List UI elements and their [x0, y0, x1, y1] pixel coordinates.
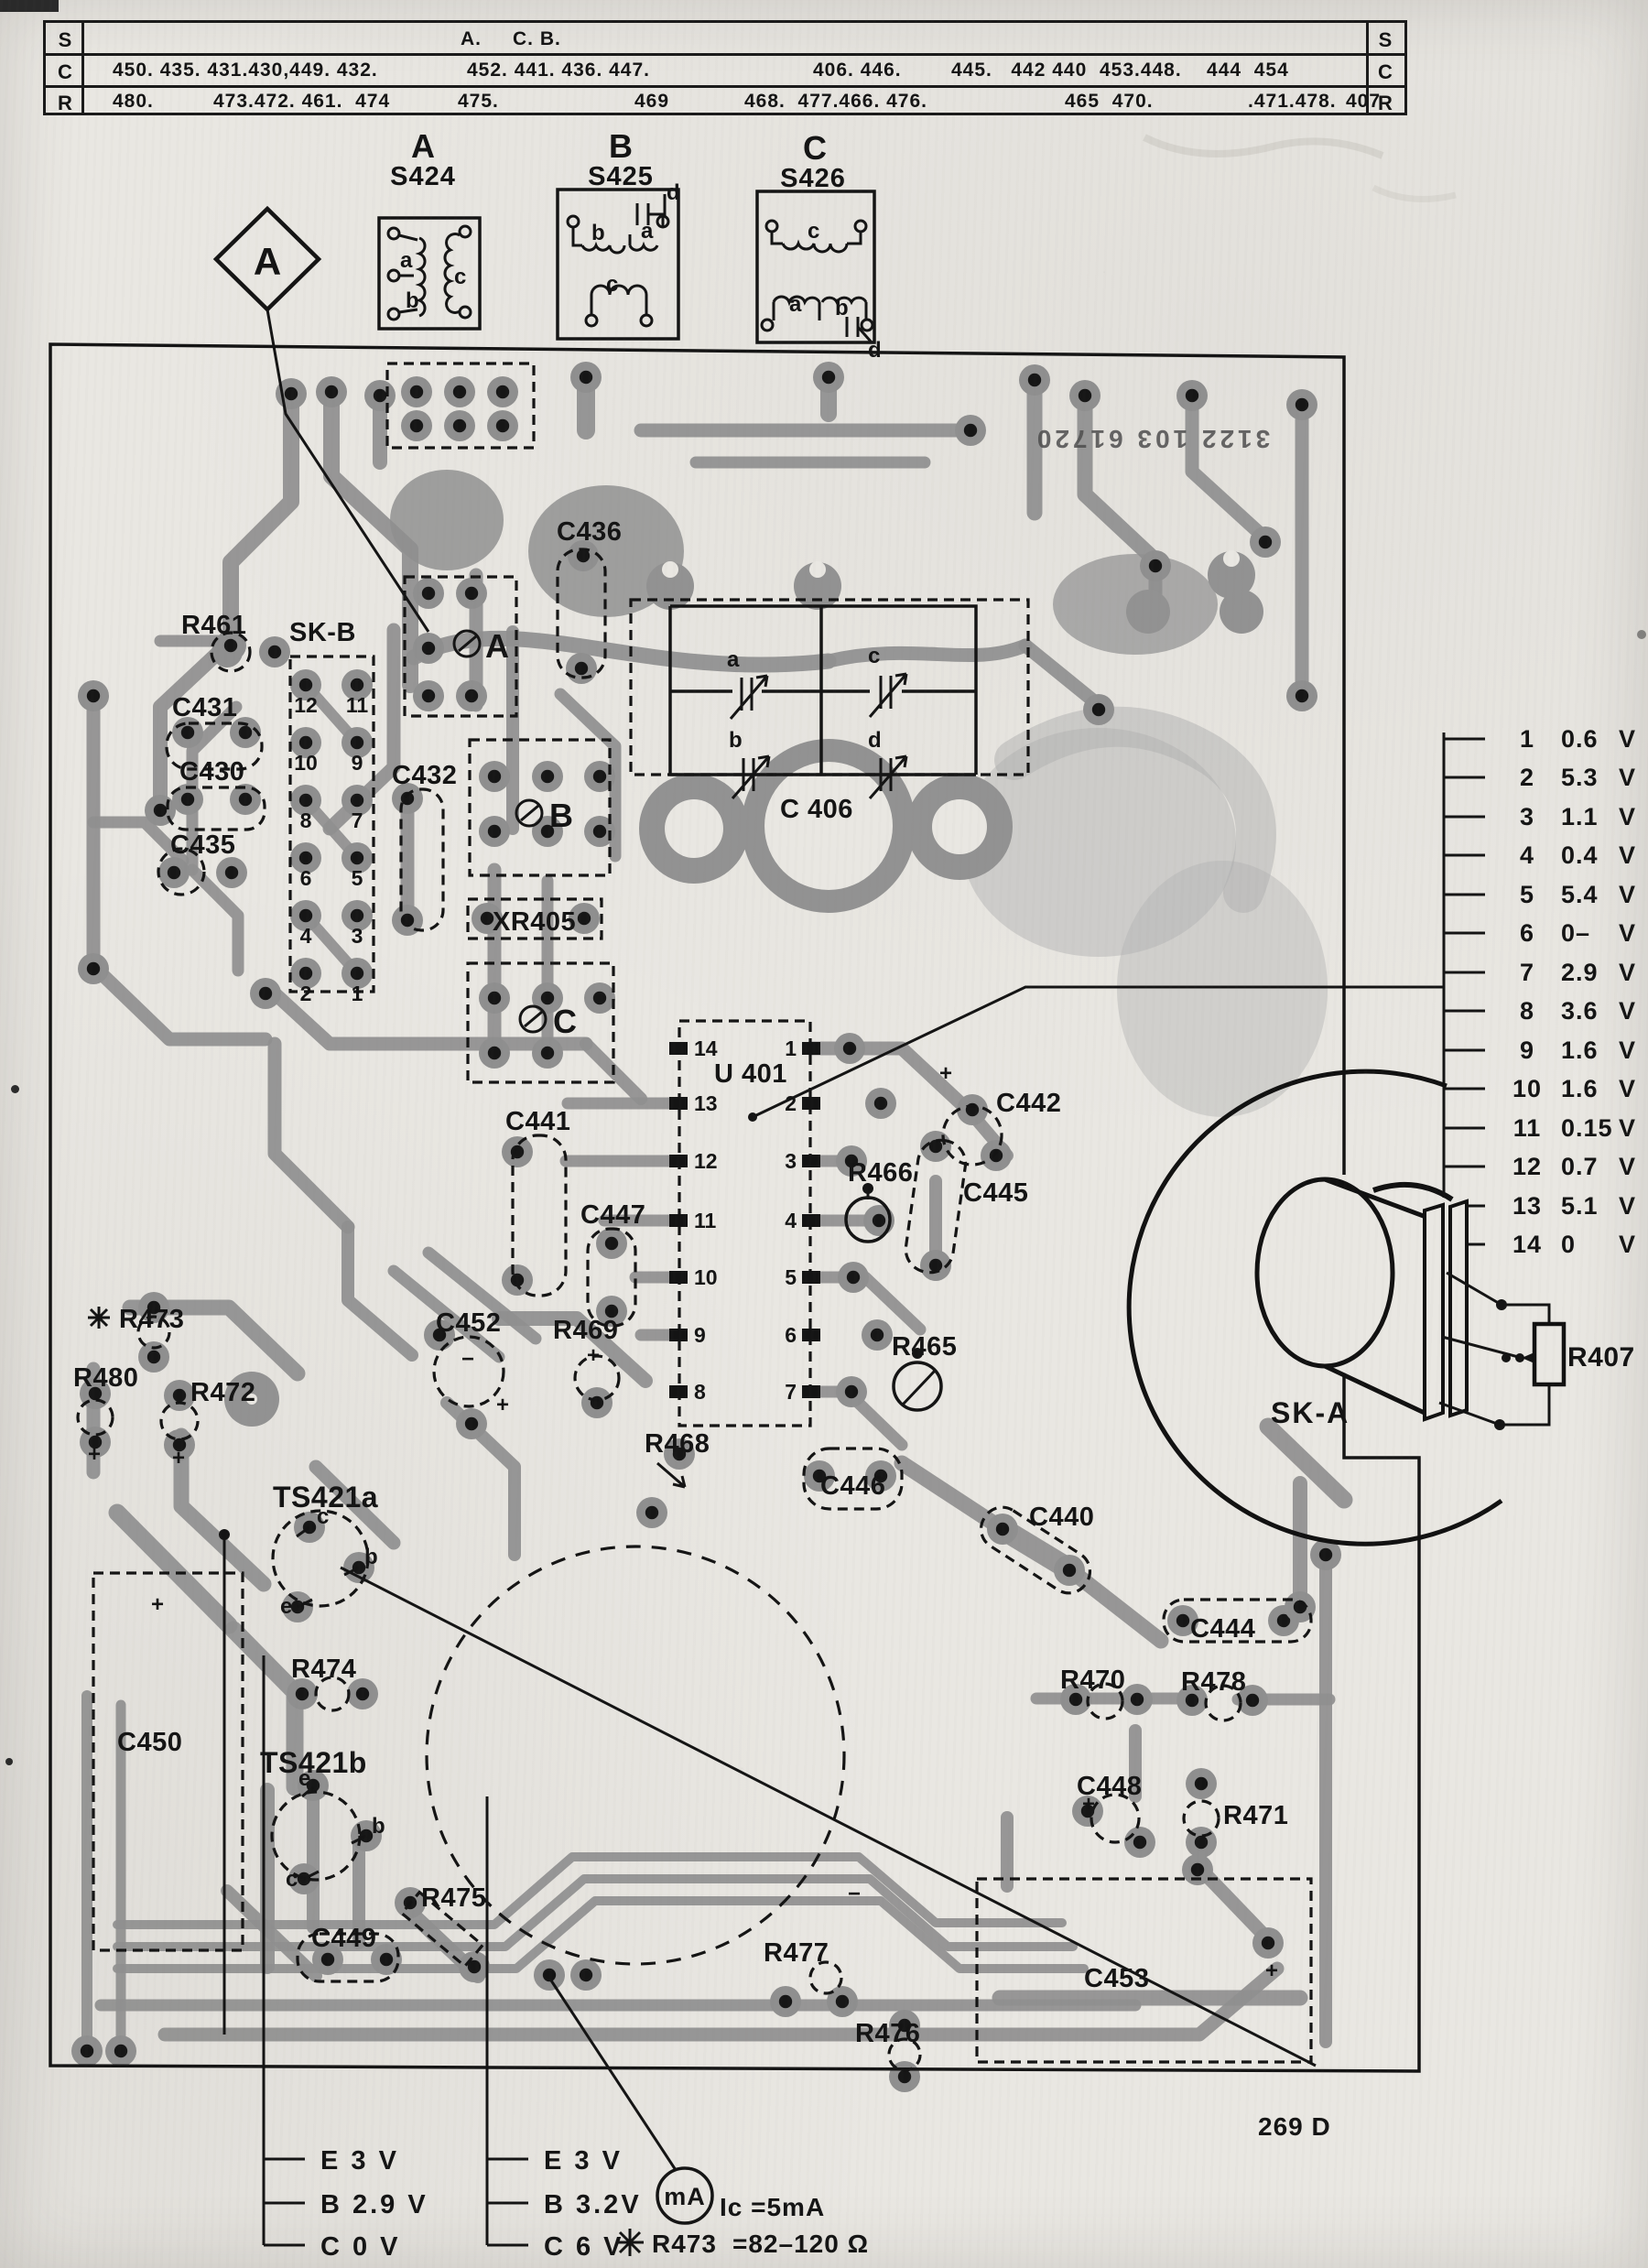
svg-text:0.15: 0.15: [1561, 1114, 1613, 1142]
solder-pad-hole: [422, 689, 435, 702]
svg-text:5.3: 5.3: [1561, 764, 1599, 791]
terminal-letter: d: [868, 338, 882, 363]
svg-text:0.7: 0.7: [1561, 1153, 1599, 1180]
svg-text:V: V: [1619, 841, 1636, 869]
solder-pad-hole: [374, 389, 386, 402]
svg-text:7: 7: [1520, 959, 1534, 986]
solder-pad-hole: [453, 385, 466, 398]
solder-pad-hole: [285, 387, 298, 400]
solder-pad-hole: [605, 1237, 618, 1250]
component-label-r476: R476: [855, 2019, 920, 2048]
svg-text:8: 8: [694, 1380, 706, 1404]
terminal-letter: d: [667, 180, 680, 205]
minus-sign: −: [461, 1347, 474, 1372]
screw-label-c: C: [553, 1003, 577, 1040]
pcb-trace: [231, 396, 291, 641]
solder-pad-hole: [168, 866, 180, 879]
component-label-r469: R469: [553, 1316, 618, 1345]
solder-pad-hole: [1028, 374, 1041, 386]
switch-detail-s425: B S425 d b a c: [558, 127, 680, 339]
component-label-r465: R465: [892, 1332, 957, 1362]
solder-pad-hole: [465, 1417, 478, 1430]
solder-pad-hole: [453, 419, 466, 432]
solder-pad-hole: [380, 1953, 393, 1966]
component-label-c436: C436: [557, 517, 622, 547]
plus-sign: +: [496, 1393, 509, 1417]
solder-pad-hole: [465, 587, 478, 600]
solder-pad-hole: [299, 852, 312, 864]
component-label-r473: R473: [119, 1305, 184, 1334]
plus-sign: +: [587, 1343, 600, 1368]
solder-pad-hole: [779, 1995, 792, 2008]
asterisk-icon: [88, 1307, 110, 1329]
component-label-u401: U 401: [714, 1059, 787, 1089]
component-label-c453: C453: [1084, 1964, 1149, 1993]
svg-text:V: V: [1619, 1075, 1636, 1102]
svg-text:1: 1: [785, 1036, 797, 1060]
coil-letter: c: [606, 272, 618, 297]
minus-sign: −: [848, 1882, 861, 1906]
svg-text:11: 11: [694, 1209, 717, 1232]
coil-letter: b: [591, 221, 605, 245]
component-label-skb: SK-B: [289, 618, 356, 647]
component-label-ts421b: TS421b: [260, 1746, 367, 1779]
component-label-c450: C450: [117, 1728, 182, 1757]
solder-pad-hole: [874, 1097, 887, 1110]
solder-pad-hole: [410, 385, 423, 398]
ts421a-pin-e: e: [280, 1594, 292, 1619]
switch-detail-s426: C S426 c d a b: [757, 129, 882, 363]
solder-pad-hole: [422, 642, 435, 655]
solder-pad-hole: [351, 794, 363, 807]
u401-pins: 14 13 12 11 10 9 8 1 2 3 4 5 6 7: [669, 1036, 820, 1404]
solder-pad-hole: [580, 1969, 592, 1981]
svg-text:2: 2: [1520, 764, 1534, 791]
plus-sign: +: [172, 1446, 185, 1470]
component-label-c452: C452: [436, 1308, 501, 1338]
solder-pad-hole: [593, 825, 606, 838]
ts421a-pin-b: b: [364, 1545, 378, 1569]
pcb-trace: [93, 966, 266, 1039]
switch-ref: S425: [588, 162, 654, 191]
solder-pad-hole: [239, 726, 252, 739]
svg-text:V: V: [1619, 881, 1636, 908]
coil-letter: b: [835, 296, 849, 320]
svg-text:10: 10: [1512, 1075, 1542, 1102]
svg-text:14: 14: [694, 1036, 718, 1060]
component-label-c447: C447: [580, 1200, 645, 1230]
component-label-r468: R468: [645, 1429, 710, 1459]
solder-pad-hole: [239, 793, 252, 806]
solder-pad-hole: [593, 770, 606, 783]
component-label-c445: C445: [963, 1178, 1028, 1208]
solder-pad-hole: [299, 909, 312, 922]
solder-pad-hole: [1319, 1548, 1332, 1561]
pcb-trace: [829, 646, 1025, 661]
print-showthrough-blob: [1117, 861, 1328, 1117]
component-label-c444: C444: [1190, 1614, 1255, 1644]
solder-pad-hole: [822, 371, 835, 384]
component-label-r478: R478: [1181, 1667, 1246, 1697]
svg-text:5: 5: [785, 1265, 797, 1289]
solder-pad-hole: [87, 689, 100, 702]
svg-text:4: 4: [1520, 841, 1534, 869]
ts421b-pin-e: e: [298, 1766, 310, 1791]
svg-text:1: 1: [352, 982, 363, 1005]
solder-pad-hole: [1131, 1693, 1144, 1706]
solder-pad-hole: [296, 1687, 309, 1700]
svg-text:V: V: [1619, 764, 1636, 791]
component-label-c440: C440: [1029, 1503, 1094, 1532]
solder-pad-hole: [225, 866, 238, 879]
trimmer-letter-c: c: [868, 644, 880, 668]
ts421a-pin-c: c: [317, 1504, 329, 1529]
plus-sign: +: [151, 1592, 164, 1617]
solder-pad-hole: [578, 912, 591, 925]
solder-pad-hole: [496, 419, 509, 432]
solder-pad-hole: [847, 1271, 860, 1284]
svg-text:2.9: 2.9: [1561, 959, 1599, 986]
svg-text:7: 7: [352, 808, 363, 832]
solder-pad-hole: [181, 726, 194, 739]
svg-text:V: V: [1619, 803, 1636, 830]
solder-pad-hole: [845, 1385, 858, 1398]
svg-text:V: V: [1619, 997, 1636, 1025]
svg-text:14: 14: [1512, 1231, 1542, 1258]
pencil-scribble: [1373, 188, 1456, 200]
svg-text:V: V: [1619, 919, 1636, 947]
component-label-r475: R475: [421, 1883, 486, 1913]
svg-text:2: 2: [300, 982, 312, 1005]
svg-text:5: 5: [1520, 881, 1534, 908]
component-label-c446: C446: [820, 1471, 885, 1501]
solder-pad-hole: [1079, 389, 1091, 402]
solder-pad-hole: [898, 2070, 911, 2083]
page-reference: 269 D: [1258, 2112, 1331, 2141]
switch-letter: A: [411, 127, 435, 165]
svg-text:1.6: 1.6: [1561, 1036, 1599, 1064]
solder-pad-hole: [299, 967, 312, 980]
svg-text:9: 9: [694, 1323, 706, 1347]
svg-text:5: 5: [352, 866, 363, 890]
trimmer-letter-b: b: [729, 728, 743, 753]
ma-label: mA: [664, 2183, 706, 2210]
svg-text:V: V: [1619, 1192, 1636, 1220]
solder-pad-hole: [488, 825, 501, 838]
svg-text:V: V: [1619, 1231, 1636, 1258]
solder-pad-hole: [541, 770, 554, 783]
solder-pad-hole: [1133, 1836, 1146, 1849]
svg-text:3: 3: [785, 1149, 797, 1173]
solder-pad-hole: [645, 1506, 658, 1519]
switch-ref: S424: [390, 162, 456, 191]
solder-pad-hole: [1149, 559, 1162, 572]
svg-text:3.6: 3.6: [1561, 997, 1599, 1025]
svg-text:E 3 V: E 3 V: [320, 2146, 399, 2176]
r473-note-value: =82–120 Ω: [732, 2230, 869, 2258]
coil-letter: a: [641, 219, 654, 244]
solder-pad-hole: [1191, 1863, 1204, 1876]
solder-pad-hole: [410, 419, 423, 432]
svg-text:2: 2: [785, 1091, 797, 1115]
svg-text:11: 11: [346, 693, 369, 717]
measurement-notes: mA Ic =5mA R473 =82–120 Ω: [616, 2168, 869, 2258]
coil-letter: a: [400, 248, 413, 273]
legend-ts421a-voltages: E 3 V B 2.9 V C 0 V: [320, 2146, 428, 2262]
component-label-c449: C449: [311, 1924, 376, 1953]
solder-pad-hole: [488, 1047, 501, 1059]
solder-pad-hole: [1176, 1614, 1189, 1627]
svg-text:V: V: [1619, 1036, 1636, 1064]
switch-letter: C: [803, 129, 827, 167]
solder-pad-hole: [1262, 1937, 1274, 1949]
solder-pad-hole: [575, 662, 588, 675]
svg-text:9: 9: [352, 751, 363, 775]
r407-potentiometer: R407: [1439, 1273, 1635, 1430]
svg-text:12: 12: [694, 1149, 718, 1173]
svg-text:6: 6: [1520, 919, 1534, 947]
asterisk-icon: [616, 2229, 644, 2256]
trimmer-a-icon: [731, 676, 767, 719]
svg-text:10: 10: [294, 751, 318, 775]
solder-pad-hole: [873, 1214, 885, 1227]
callout-a-letter: A: [254, 240, 281, 283]
svg-text:12: 12: [294, 693, 318, 717]
svg-text:7: 7: [785, 1380, 797, 1404]
solder-pad-hole: [299, 736, 312, 749]
svg-text:10: 10: [694, 1265, 718, 1289]
sk-a-control: SK-A R407: [1129, 1071, 1635, 1544]
solder-pad-hole: [1195, 1836, 1208, 1849]
svg-text:13: 13: [1512, 1192, 1542, 1220]
solder-pad-hole: [321, 1953, 334, 1966]
solder-pad-hole: [488, 992, 501, 1004]
solder-pad-hole: [843, 1042, 856, 1055]
solder-pad-hole: [81, 2045, 93, 2057]
solder-pad-hole: [1296, 689, 1308, 702]
solder-pad-hole: [1246, 1694, 1259, 1707]
component-label-c435: C435: [170, 830, 235, 860]
label-r407: R407: [1567, 1342, 1635, 1373]
pcb-trace: [275, 1044, 348, 1227]
part-number-mirrored: 3122 103 61720: [1034, 425, 1270, 453]
trimmer-letter-a: a: [727, 647, 740, 672]
r473-note-ref: R473: [652, 2230, 717, 2258]
adjust-screw-b-icon: [516, 800, 542, 826]
switch-detail-s424: A S424 a b c: [379, 127, 480, 329]
plus-sign: +: [1265, 1959, 1278, 1983]
solder-pad-hole: [356, 1687, 369, 1700]
coil-letter: c: [808, 219, 819, 244]
svg-text:0.6: 0.6: [1561, 725, 1599, 753]
solder-pad-hole: [929, 1259, 942, 1272]
component-label-r480: R480: [73, 1363, 138, 1393]
pcb-trace: [181, 1436, 264, 1584]
solder-pad-hole: [114, 2045, 127, 2057]
svg-text:V: V: [1619, 1153, 1636, 1180]
solder-pad-hole: [268, 646, 281, 658]
svg-text:V: V: [1619, 725, 1636, 753]
svg-text:B 3.2V: B 3.2V: [544, 2190, 642, 2219]
switch-ref: S426: [780, 164, 846, 193]
solder-pad-hole: [1259, 536, 1272, 548]
pcb-trace: [1025, 646, 1099, 705]
solder-pad-hole: [929, 1140, 942, 1153]
svg-text:4: 4: [785, 1209, 797, 1232]
component-label-c442: C442: [996, 1089, 1061, 1118]
plus-sign: +: [1082, 1792, 1095, 1817]
solder-pad-hole: [1296, 398, 1308, 411]
svg-text:13: 13: [694, 1091, 718, 1115]
switch-letter: B: [609, 127, 633, 165]
pcb-layout-drawing: 3122 103 61720 A S424 a b c B: [0, 0, 1648, 2268]
solder-pad-hole: [836, 1995, 849, 2008]
solder-pad-hole: [325, 385, 338, 398]
svg-text:6: 6: [300, 866, 312, 890]
solder-pad-hole: [87, 962, 100, 975]
svg-text:0.4: 0.4: [1561, 841, 1599, 869]
solder-pad-hole: [299, 794, 312, 807]
solder-pad-hole: [1092, 703, 1105, 716]
component-label-r472: R472: [190, 1378, 255, 1407]
screw-label-b: B: [549, 797, 573, 834]
svg-text:0: 0: [1561, 1231, 1576, 1258]
solder-pad-hole: [871, 1329, 884, 1341]
pcb-trace: [348, 1227, 412, 1355]
coil-letter: a: [789, 292, 802, 317]
pcb-trace: [902, 1463, 1000, 1527]
solder-pad-hole: [154, 804, 167, 817]
plus-sign: +: [939, 1061, 952, 1086]
solder-pad-hole: [173, 1389, 186, 1402]
svg-text:12: 12: [1512, 1153, 1542, 1180]
ic-note: Ic =5mA: [720, 2193, 825, 2221]
component-label-c406: C 406: [780, 795, 853, 824]
pcb-trace: [1085, 394, 1155, 560]
solder-pad-hole: [1186, 389, 1198, 402]
solder-pad-hole: [299, 678, 312, 691]
solder-pad-hole: [351, 852, 363, 864]
component-label-c432: C432: [392, 761, 457, 790]
component-label-c431: C431: [172, 693, 237, 722]
component-label-r461: R461: [181, 611, 246, 640]
solder-pad-hole: [964, 424, 977, 437]
svg-text:9: 9: [1520, 1036, 1534, 1064]
trimmer-c-icon: [870, 674, 906, 717]
solder-pad-hole: [181, 793, 194, 806]
label-sk-a: SK-A: [1271, 1396, 1350, 1429]
component-label-r471: R471: [1223, 1801, 1288, 1830]
solder-pad-hole: [496, 385, 509, 398]
scanned-service-manual-page: S C R S C R A. C. B. 450. 435. 431.430,4…: [0, 0, 1648, 2268]
svg-text:B 2.9 V: B 2.9 V: [320, 2190, 428, 2219]
solder-pad-hole: [541, 1047, 554, 1059]
svg-text:3: 3: [1520, 803, 1534, 830]
solder-pad-hole: [351, 736, 363, 749]
svg-text:1.1: 1.1: [1561, 803, 1599, 830]
svg-text:E 3 V: E 3 V: [544, 2146, 623, 2176]
svg-text:11: 11: [1513, 1114, 1542, 1142]
solder-pad-hole: [147, 1351, 160, 1363]
svg-text:4: 4: [300, 924, 312, 948]
solder-pad-hole: [351, 678, 363, 691]
solder-pad-hole: [465, 689, 478, 702]
component-label-c441: C441: [505, 1107, 570, 1136]
pcb-trace: [1069, 1569, 1161, 1641]
solder-pad-hole: [351, 967, 363, 980]
plus-sign: +: [88, 1442, 101, 1467]
trimmer-letter-d: d: [868, 728, 882, 753]
component-label-r466: R466: [848, 1158, 913, 1188]
svg-text:V: V: [1619, 959, 1636, 986]
solder-pad-hole: [259, 987, 272, 1000]
svg-text:C 6 V: C 6 V: [544, 2232, 624, 2262]
screw-label-a: A: [485, 627, 509, 665]
ts421b-pin-b: b: [372, 1814, 385, 1839]
pcb-trace: [1192, 394, 1265, 538]
svg-text:1.6: 1.6: [1561, 1075, 1599, 1102]
coil-letter: b: [406, 288, 419, 313]
svg-text:8: 8: [300, 808, 312, 832]
svg-text:5.1: 5.1: [1561, 1192, 1599, 1220]
component-label-xr405: XR405: [493, 907, 576, 937]
solder-pad-hole: [1063, 1564, 1076, 1577]
solder-pad-hole: [422, 587, 435, 600]
solder-pad-hole: [996, 1523, 1009, 1536]
svg-text:8: 8: [1520, 997, 1534, 1025]
svg-text:6: 6: [785, 1323, 797, 1347]
solder-pad-hole: [351, 909, 363, 922]
solder-pad-hole: [580, 371, 592, 384]
coil-letter: c: [454, 265, 466, 289]
svg-text:1: 1: [1520, 725, 1534, 753]
pencil-scribble: [1144, 137, 1382, 156]
solder-pad-hole: [488, 770, 501, 783]
solder-pad-hole: [224, 639, 237, 652]
svg-text:0–: 0–: [1561, 919, 1590, 947]
svg-text:3: 3: [352, 924, 363, 948]
component-label-c430: C430: [179, 757, 244, 787]
svg-text:V: V: [1619, 1114, 1636, 1142]
svg-text:C 0 V: C 0 V: [320, 2232, 401, 2262]
solder-pad-hole: [593, 992, 606, 1004]
svg-text:5.4: 5.4: [1561, 881, 1599, 908]
ts421b-pin-c: c: [286, 1867, 298, 1892]
